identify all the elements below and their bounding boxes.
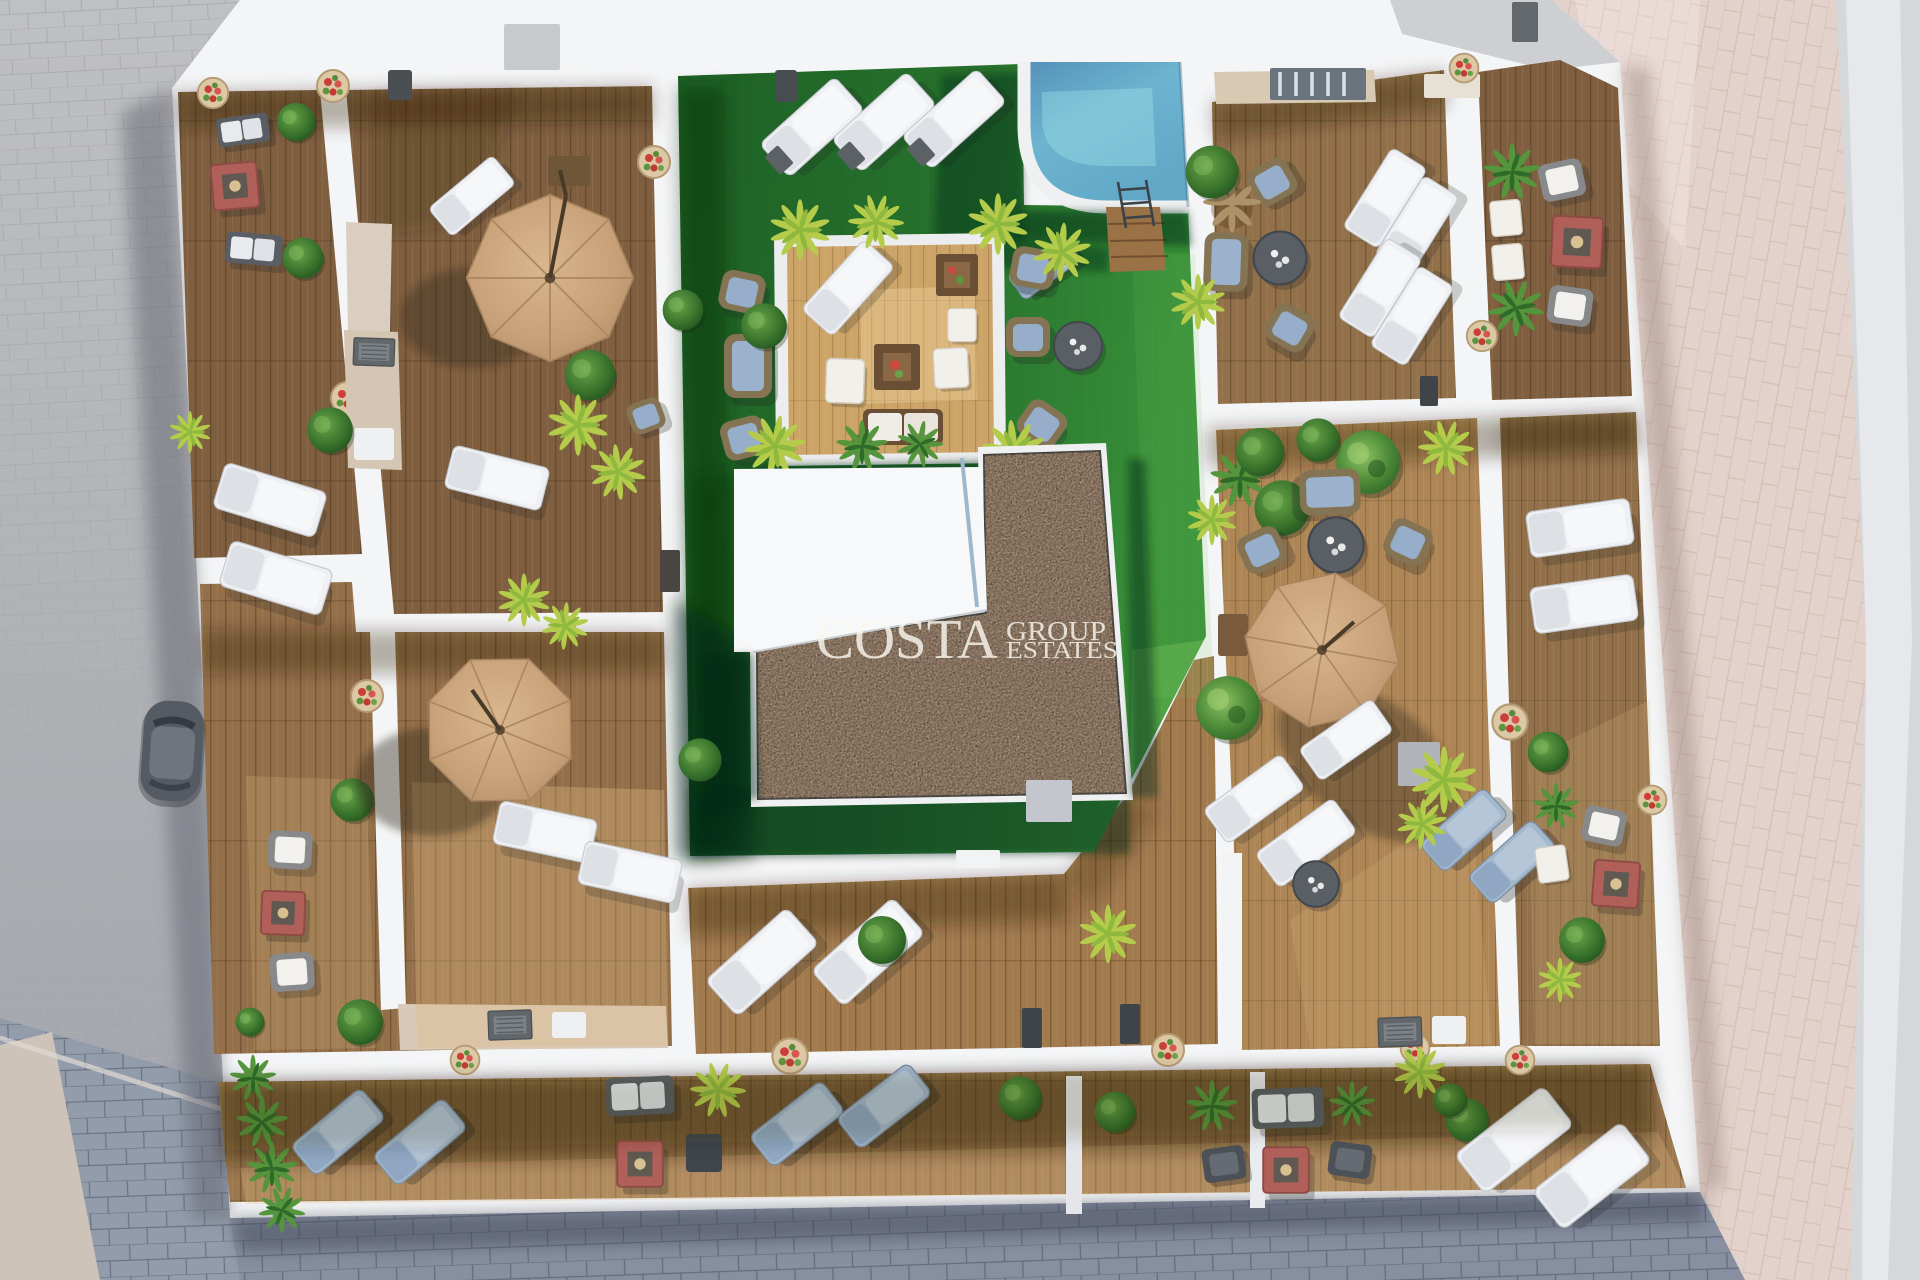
svg-text:ESTATES: ESTATES	[1006, 638, 1118, 664]
svg-text:COSTA: COSTA	[816, 609, 999, 671]
